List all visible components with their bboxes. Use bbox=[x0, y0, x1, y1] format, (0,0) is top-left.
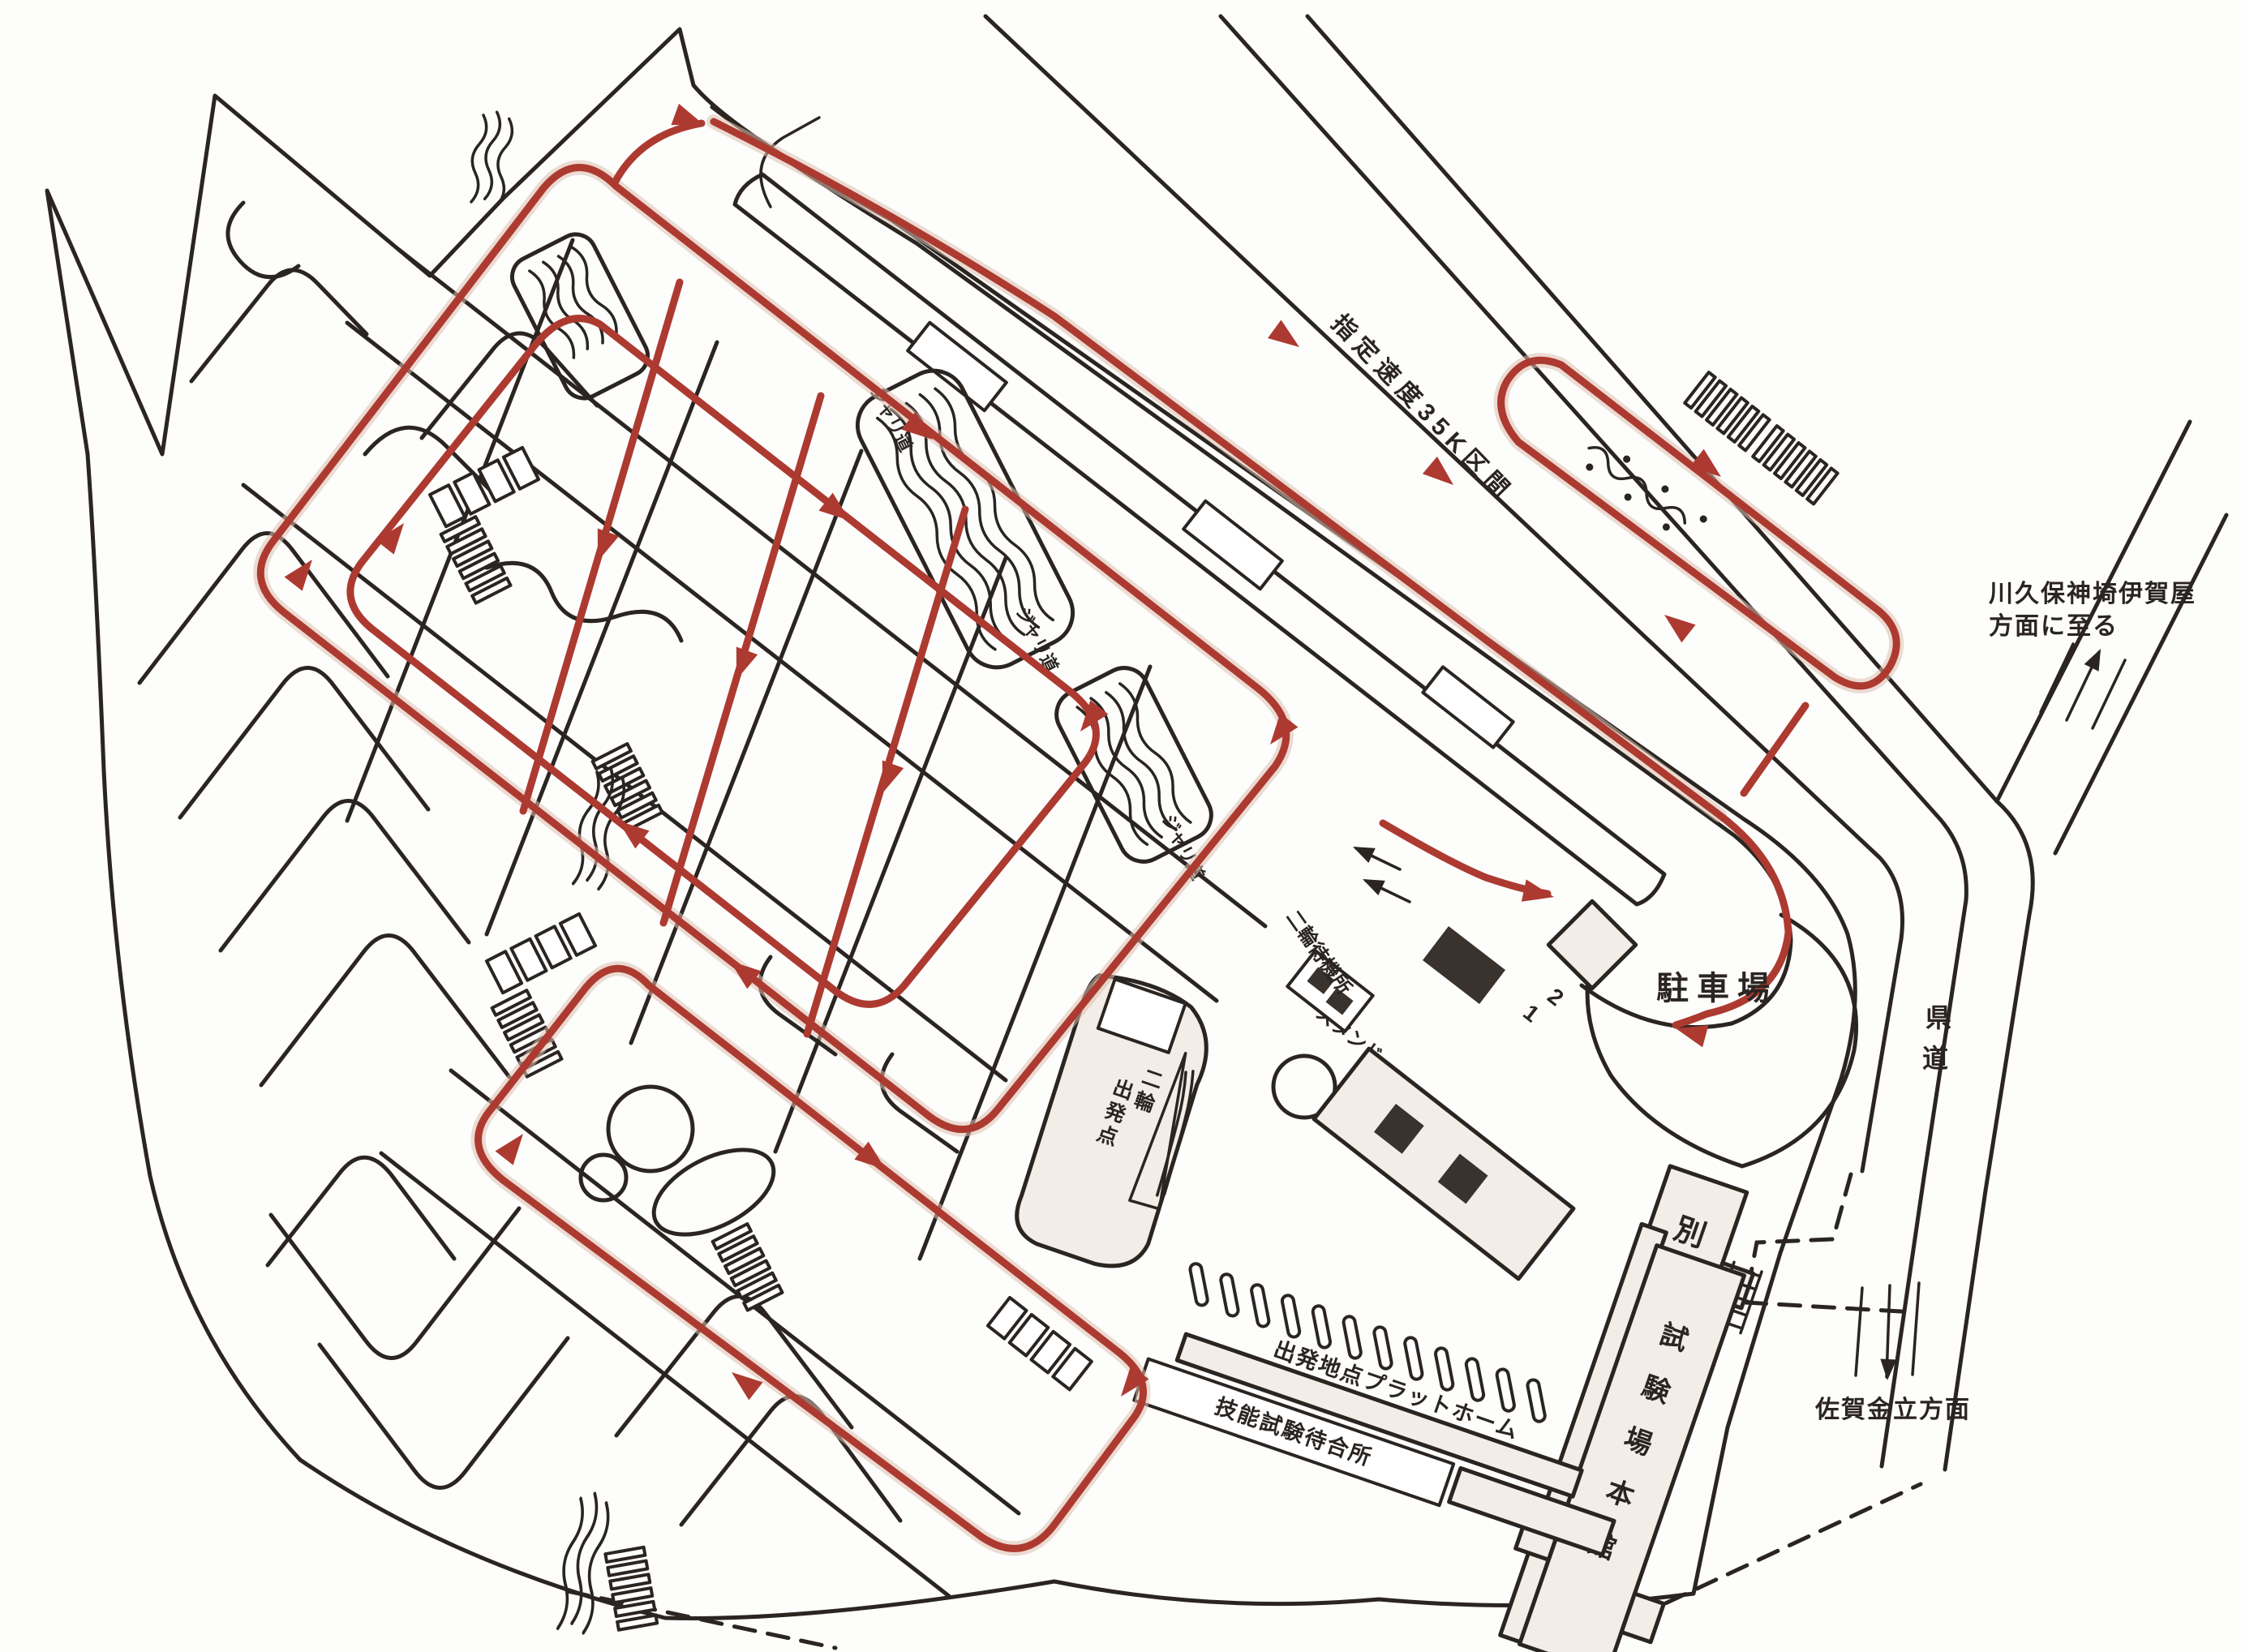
north-direction-label-line1: 川久保神埼伊賀屋 bbox=[1989, 581, 2196, 607]
south-direction-label: 佐賀金立方面 bbox=[1814, 1396, 1971, 1423]
stand-area: スタンド 二輪待機所 bbox=[1273, 906, 1573, 1278]
small-building bbox=[1548, 901, 1635, 988]
practice-course-roads bbox=[140, 203, 1265, 1596]
driving-course-map: 1 2 bbox=[0, 0, 2241, 1652]
top-road-strip-boxes bbox=[908, 323, 1513, 748]
top-road bbox=[712, 107, 1791, 1028]
gate-building bbox=[1423, 926, 1505, 1004]
boundary-dashes-bottom-center bbox=[568, 1591, 835, 1648]
course-map-canvas: 1 2 bbox=[0, 0, 2241, 1652]
north-direction-arrows bbox=[2041, 644, 2125, 728]
motorcycle-start-area: 二 輪 出 発 点 bbox=[1003, 967, 1228, 1278]
pref-road-label-char1: 県 bbox=[1925, 1003, 1951, 1032]
parking-label: 駐車場 bbox=[1656, 971, 1778, 1006]
north-direction-label-line2: 方面に至る bbox=[1989, 612, 2119, 640]
pref-road-label-char2: 道 bbox=[1922, 1044, 1948, 1073]
garage-area bbox=[1314, 1049, 1573, 1279]
lane-number-2: 2 bbox=[1543, 983, 1568, 1011]
speed-section-label: 指定速度35K区間 bbox=[1326, 309, 1519, 507]
south-direction-arrows bbox=[1856, 1283, 1919, 1381]
lane-number-1: 1 bbox=[1518, 999, 1543, 1027]
one-way-arrows bbox=[1350, 839, 1410, 902]
